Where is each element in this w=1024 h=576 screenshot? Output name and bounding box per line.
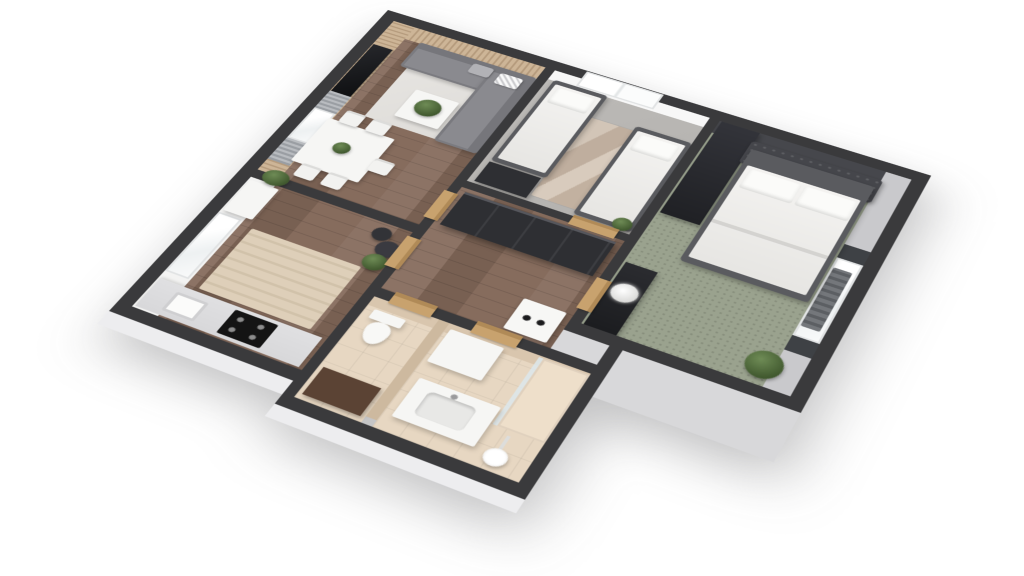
burner-1 [236, 316, 246, 323]
burner-3 [227, 326, 237, 333]
burner-4 [247, 334, 257, 341]
apartment-plan [85, 10, 931, 576]
render-scene [0, 0, 1024, 576]
washer-knob-2 [535, 319, 546, 327]
floorplan-canvas [0, 0, 1024, 576]
burner-2 [256, 324, 266, 331]
washer-knob-1 [521, 314, 532, 322]
